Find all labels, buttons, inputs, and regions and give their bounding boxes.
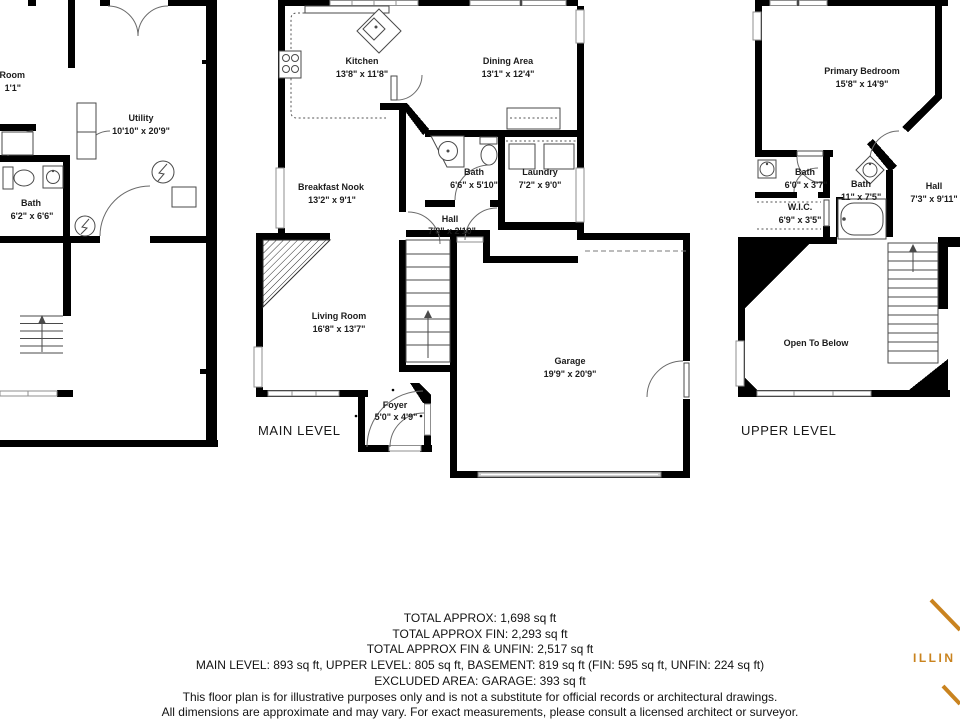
room-dims-laundry: 7'2" x 9'0"	[519, 180, 562, 190]
room-label-wic: W.I.C.	[788, 202, 813, 212]
summary-level-breakdown: MAIN LEVEL: 893 sq ft, UPPER LEVEL: 805 …	[0, 658, 960, 674]
room-dims-kitchen: 13'8" x 11'8"	[336, 69, 388, 79]
toilet-icon	[3, 167, 34, 189]
upper-level-title: UPPER LEVEL	[741, 423, 836, 438]
basement-windows	[0, 391, 57, 396]
room-dims-main-hall: 7'8" x 2'10"	[428, 226, 476, 236]
room-dims-breakfast-nook: 13'2" x 9'1"	[308, 195, 356, 205]
room-dims-upper-bath2: 11" x 7'5"	[841, 192, 881, 202]
summary-excluded-area: EXCLUDED AREA: GARAGE: 393 sq ft	[0, 674, 960, 690]
basement-plan: Room 1'1" Utility 10'10" x 20'9" Bath 6'…	[0, 0, 218, 447]
summary-total-approx: TOTAL APPROX: 1,698 sq ft	[0, 611, 960, 627]
main-stairs-icon	[406, 240, 450, 362]
room-label-laundry: Laundry	[522, 167, 558, 177]
logo-chevron-bottom	[943, 686, 960, 704]
room-dims-upper-hall: 7'3" x 9'11"	[910, 194, 957, 204]
room-label-open-to-below: Open To Below	[784, 338, 850, 348]
main-level-title: MAIN LEVEL	[258, 423, 341, 438]
room-dims-cut-room: 1'1"	[5, 83, 21, 93]
washer-dryer-icons	[506, 141, 576, 169]
room-label-dining: Dining Area	[483, 56, 534, 66]
disclaimer-line-1: This floor plan is for illustrative purp…	[0, 690, 960, 706]
room-label-main-hall: Hall	[442, 214, 459, 224]
logo-text: ILLIN	[913, 651, 956, 665]
room-label-foyer: Foyer	[383, 400, 408, 410]
room-label-kitchen: Kitchen	[345, 56, 378, 66]
upper-stairs-icon	[888, 243, 938, 363]
room-dims-upper-bath1: 6'0" x 3'7"	[785, 180, 828, 190]
basement-walls	[0, 0, 218, 447]
room-dims-primary-bedroom: 15'8" x 14'9"	[836, 79, 889, 89]
water-heater-icon	[75, 216, 95, 236]
main-bath-fixtures	[431, 136, 497, 167]
room-label-garage: Garage	[554, 356, 585, 366]
brand-logo: ILLIN	[902, 592, 960, 710]
room-label-main-bath: Bath	[464, 167, 484, 177]
logo-chevron-top	[931, 600, 960, 630]
room-dims-main-bath: 6'6" x 5'10"	[450, 180, 498, 190]
fireplace-icon	[263, 240, 330, 307]
stove-icon	[279, 51, 301, 78]
main-level-plan: Kitchen 13'8" x 11'8" Dining Area 13'1" …	[254, 0, 690, 478]
electrical-panel-icon	[152, 161, 196, 207]
summary-total-fin: TOTAL APPROX FIN: 2,293 sq ft	[0, 627, 960, 643]
room-label-breakfast-nook: Breakfast Nook	[298, 182, 365, 192]
room-label-living-room: Living Room	[312, 311, 367, 321]
area-summary: TOTAL APPROX: 1,698 sq ft TOTAL APPROX F…	[0, 611, 960, 720]
summary-total-fin-unfin: TOTAL APPROX FIN & UNFIN: 2,517 sq ft	[0, 642, 960, 658]
room-dims-utility: 10'10" x 20'9"	[112, 126, 170, 136]
dining-buffet	[507, 108, 560, 129]
disclaimer-line-2: All dimensions are approximate and may v…	[0, 705, 960, 720]
upper-bath1-sink-icon	[758, 160, 776, 178]
room-dims-living-room: 16'8" x 13'7"	[313, 324, 366, 334]
sink-icon	[43, 166, 63, 188]
floorplan-page: Room 1'1" Utility 10'10" x 20'9" Bath 6'…	[0, 0, 960, 720]
room-label-upper-bath2: Bath	[851, 179, 871, 189]
room-label-utility: Utility	[128, 113, 153, 123]
room-dims-garage: 19'9" x 20'9"	[544, 369, 597, 379]
room-dims-basement-bath: 6'2" x 6'6"	[11, 211, 54, 221]
brand-logo-mark: ILLIN	[902, 592, 960, 710]
room-dims-dining: 13'1" x 12'4"	[482, 69, 535, 79]
room-dims-wic: 6'9" x 3'5"	[779, 215, 822, 225]
room-label-upper-hall: Hall	[926, 181, 943, 191]
upper-level-plan: Primary Bedroom 15'8" x 14'9" Bath 6'0" …	[736, 0, 960, 438]
room-label-cut-room: Room	[0, 70, 25, 80]
basement-stairs-icon	[20, 315, 63, 353]
floorplan-drawing: Room 1'1" Utility 10'10" x 20'9" Bath 6'…	[0, 0, 960, 592]
room-label-upper-bath1: Bath	[795, 167, 815, 177]
room-label-basement-bath: Bath	[21, 198, 41, 208]
room-dims-foyer: 5'0" x 4'9"	[375, 412, 418, 422]
room-label-primary-bedroom: Primary Bedroom	[824, 66, 900, 76]
